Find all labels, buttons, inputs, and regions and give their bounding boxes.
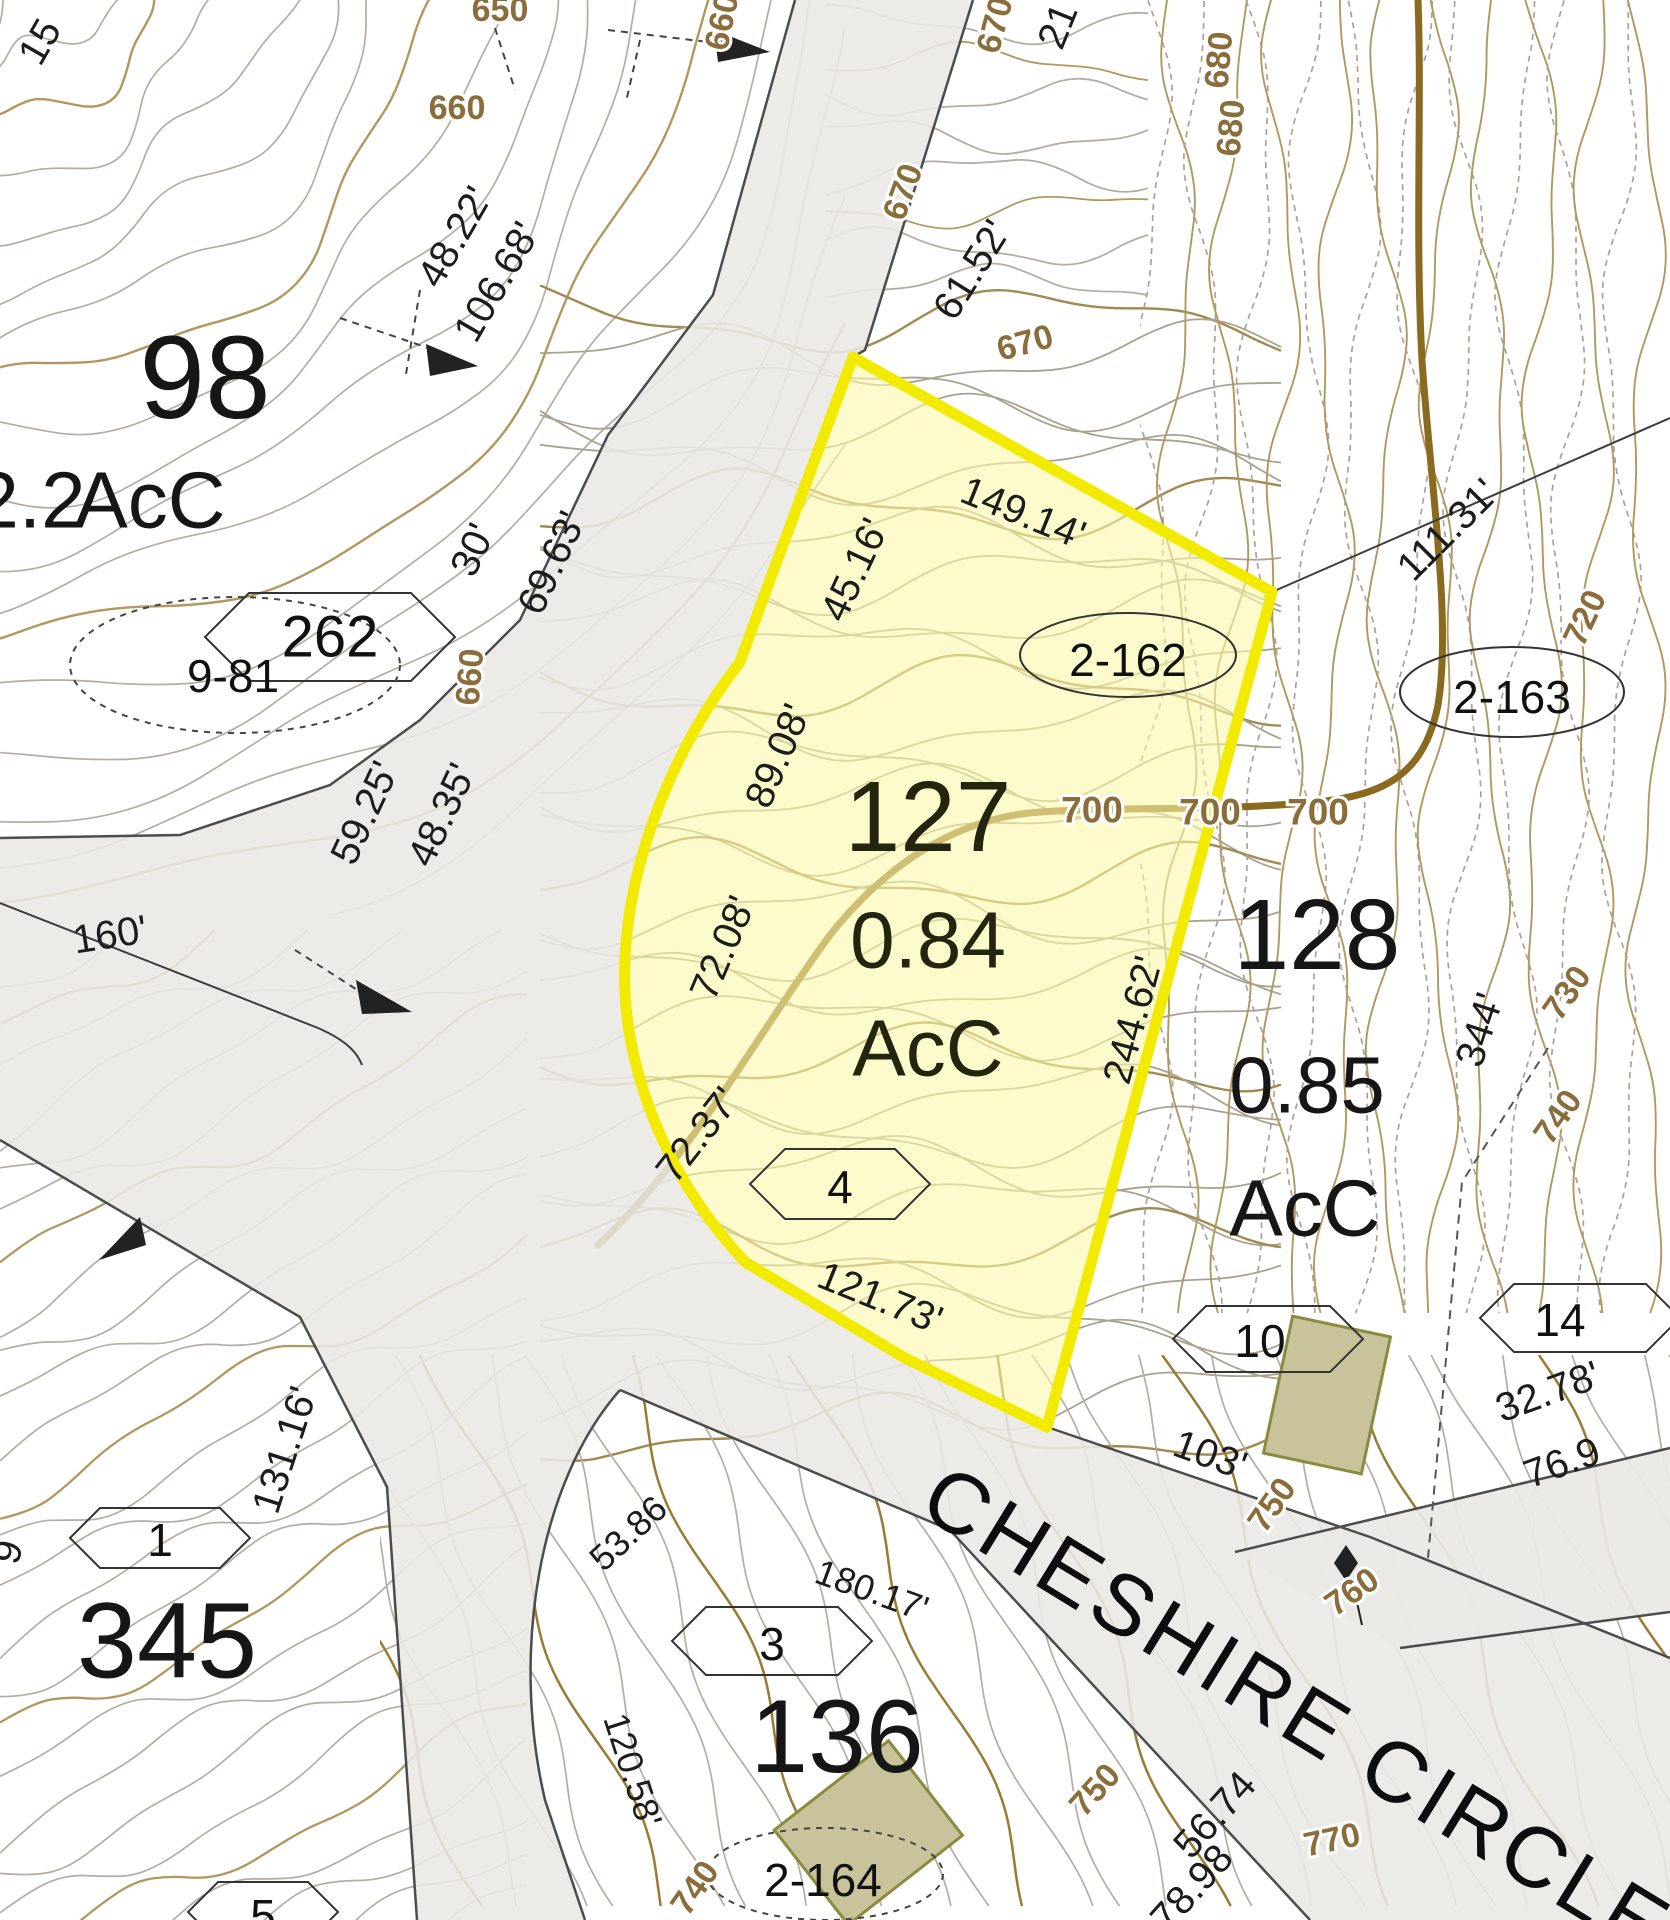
acreage-128: 0.85	[1229, 1041, 1385, 1130]
lot-id-262: 262	[282, 605, 379, 670]
parcel-number-127: 127	[845, 761, 1012, 873]
map-canvas[interactable]: CHESHIRE CIRCLE 98 2.2 AcC 127 0.84 AcC …	[0, 0, 1670, 1920]
lot-id-5: 5	[250, 1890, 276, 1920]
lot-id-4: 4	[827, 1161, 853, 1213]
contour-elevation-label: 700	[1061, 790, 1123, 831]
soil-code-127: AcC	[852, 1004, 1003, 1093]
parcel-number-136: 136	[750, 1679, 924, 1795]
contour-elevation-label: 680	[1198, 30, 1241, 90]
contour-elevation-label: 680	[1210, 98, 1253, 158]
lot-id-10: 10	[1234, 1315, 1285, 1367]
soil-code-left: AcC	[74, 456, 225, 545]
parcel-map: CHESHIRE CIRCLE 98 2.2 AcC 127 0.84 AcC …	[0, 0, 1670, 1920]
lot-id-9-81: 9-81	[187, 650, 279, 702]
lot-id-14: 14	[1534, 1294, 1585, 1346]
lot-id-2-162: 2-162	[1069, 634, 1187, 686]
parcel-number-128: 128	[1234, 879, 1401, 991]
contour-elevation-label: 660	[449, 647, 492, 707]
soil-code-128: AcC	[1229, 1164, 1380, 1253]
acreage-127: 0.84	[850, 896, 1006, 985]
lot-id-2-164: 2-164	[764, 1854, 882, 1906]
parcel-number-345: 345	[77, 1580, 257, 1701]
contour-elevation-label: 700	[1287, 792, 1349, 833]
contour-elevation-label: 660	[429, 89, 486, 127]
acreage-2-2: 2.2	[0, 456, 86, 545]
lot-id-3: 3	[759, 1618, 785, 1670]
contour-elevation-label: 650	[472, 0, 529, 29]
contour-elevation-label: 700	[1179, 792, 1241, 833]
lot-id-1: 1	[147, 1514, 173, 1566]
parcel-number-98: 98	[139, 312, 270, 444]
lot-id-2-163: 2-163	[1453, 671, 1571, 723]
